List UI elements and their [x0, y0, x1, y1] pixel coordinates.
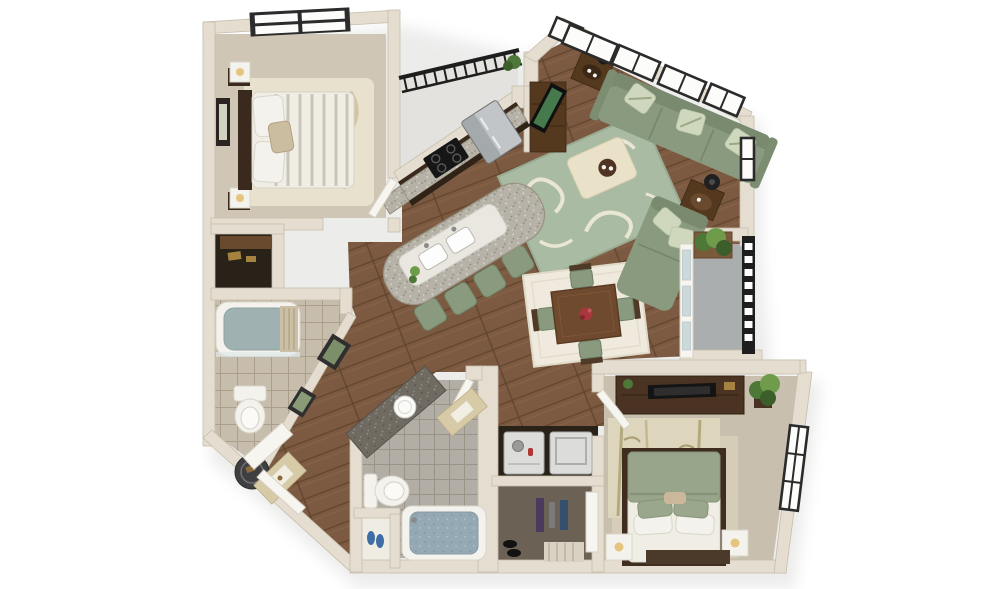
table-lamp — [704, 174, 720, 190]
bathroom1-north-wall — [211, 288, 352, 300]
toilet — [364, 474, 409, 508]
bathtub2-water — [410, 512, 478, 554]
tub-faucet — [411, 517, 417, 523]
sliding-glass-door — [680, 244, 693, 358]
bathtub2 — [402, 506, 486, 560]
hanging-garment — [536, 498, 544, 532]
bed2 — [622, 448, 726, 566]
cube-lamp — [606, 534, 632, 560]
living-east-window — [741, 138, 754, 180]
bedroom1-east-wall — [388, 10, 400, 178]
dresser-tv — [648, 383, 716, 399]
dining-chair — [578, 339, 603, 365]
bed1-accent-pillow — [268, 120, 295, 153]
washer-button — [528, 448, 533, 456]
washer — [504, 432, 544, 474]
balcony-east-railing — [742, 236, 755, 354]
slipper-closet-interior — [358, 516, 394, 562]
foot-bench — [646, 550, 730, 564]
bed2-accent-pillow — [664, 492, 686, 504]
bathroom1-east-wall — [340, 288, 352, 314]
dining-chair — [569, 263, 594, 289]
closet1-east-wall — [272, 228, 284, 294]
washer-dial — [513, 441, 524, 452]
bathroom2-north-stub — [466, 366, 482, 380]
shoe-rack — [544, 542, 584, 562]
slipper-closet-wall-east — [390, 514, 400, 568]
dryer — [550, 432, 592, 474]
toilet — [234, 386, 266, 433]
floor-plan-render — [0, 0, 988, 589]
cube-lamp — [230, 188, 250, 208]
walkin-closet-door — [586, 492, 598, 552]
bedroom2-north-wall — [592, 360, 800, 374]
art-frame-mat — [219, 104, 227, 140]
bedroom2-west-wall-upper — [592, 374, 604, 392]
closet1-north-wall — [211, 224, 284, 234]
bathtub-water — [224, 308, 288, 350]
bedroom1-east-wall-stub — [388, 218, 400, 232]
hanging-garment — [560, 500, 568, 530]
balcony-planter-box — [694, 228, 732, 258]
dresser-plant — [623, 379, 633, 389]
bed1-headboard — [238, 90, 252, 190]
cube-lamp — [230, 62, 250, 82]
floor-plan-page — [0, 0, 988, 589]
dresser-decor — [724, 382, 735, 390]
dresser — [616, 376, 744, 414]
laundry-divider-wall — [492, 476, 604, 486]
bathroom2-west-wall — [350, 430, 362, 572]
hanging-garment — [549, 502, 555, 528]
tub-glass-panel — [216, 352, 300, 357]
